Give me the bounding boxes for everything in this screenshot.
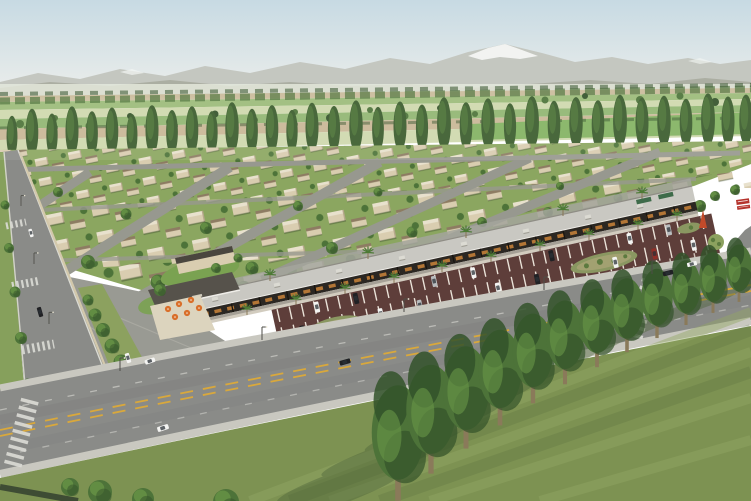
- atmospheric-haze-overlay: [0, 84, 751, 160]
- rendering-stage: Aerial 3D rendering of a master-planned …: [0, 0, 751, 501]
- entry-monument-sign: [736, 198, 750, 210]
- aerial-rendering: Aerial 3D rendering of a master-planned …: [0, 0, 751, 501]
